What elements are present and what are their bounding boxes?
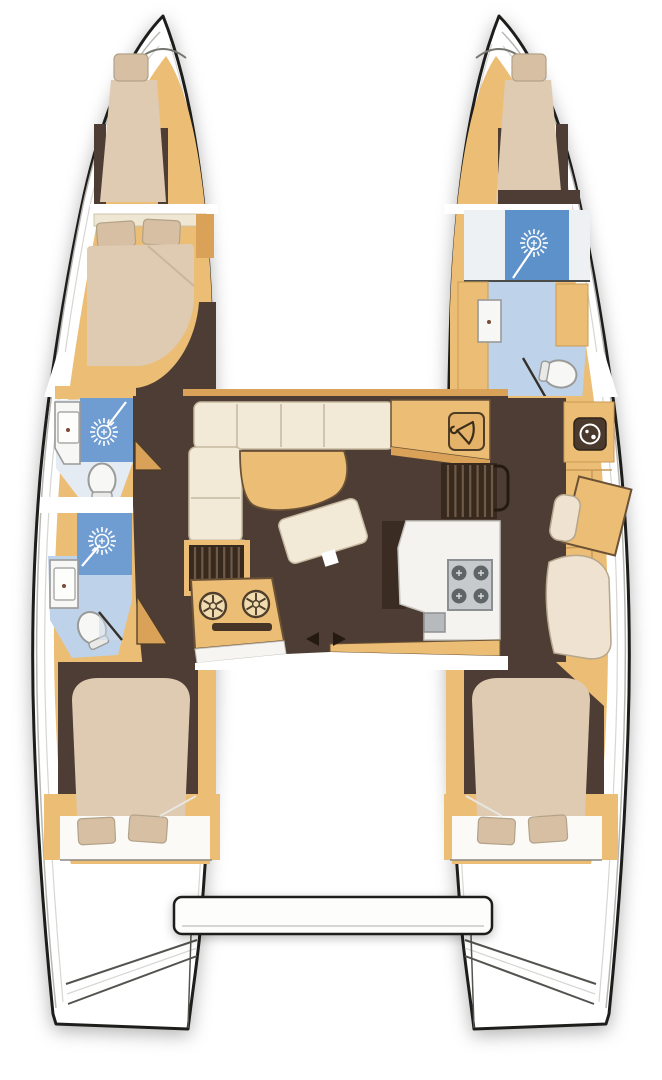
starboard-aft-cabin	[444, 662, 618, 860]
pillow	[512, 54, 546, 81]
sofa-side-cushions	[189, 447, 242, 542]
washing-machine-icon	[574, 418, 606, 450]
pillow	[528, 815, 568, 844]
washbasin-icon	[54, 568, 75, 600]
shower-stall	[505, 210, 569, 280]
door-header	[498, 190, 580, 204]
port-aft-cabin	[44, 662, 220, 860]
port-corridor	[133, 396, 183, 670]
shower-icon	[88, 527, 116, 555]
double-bed-mattress	[472, 678, 590, 816]
shower-stall	[80, 398, 133, 462]
floorplan-canvas	[0, 0, 662, 1080]
lounge-seat	[546, 555, 611, 658]
cabin-side-locker	[198, 662, 216, 794]
bulkhead-band	[40, 497, 135, 513]
shower-icon	[90, 418, 118, 446]
pillow	[114, 54, 148, 81]
console-slot	[212, 623, 272, 631]
bed-foot-deck	[452, 816, 602, 860]
basin-drain	[62, 584, 66, 588]
pillow	[128, 815, 168, 844]
pillow	[96, 221, 136, 249]
wardrobe	[449, 413, 484, 450]
step-treads	[448, 465, 492, 517]
salon	[183, 389, 508, 670]
basin-drain	[487, 320, 491, 324]
pillow	[477, 817, 515, 845]
galley-sink	[424, 613, 445, 632]
starboard-bathroom	[458, 282, 588, 405]
toilet-icon	[89, 464, 116, 501]
stern-platform	[174, 897, 492, 934]
cabin-locker	[196, 214, 214, 258]
salon-forward-wall	[183, 389, 508, 396]
washbasin-icon	[58, 412, 79, 443]
bathroom-cabinet	[556, 284, 588, 346]
transom-platform	[174, 897, 492, 934]
shower-icon	[520, 229, 548, 257]
shower-stall	[77, 513, 132, 575]
berth-mattress	[496, 80, 562, 202]
sink-drain-icon	[200, 593, 226, 619]
bulkhead-band	[90, 204, 218, 214]
catamaran-floorplan	[0, 0, 662, 1080]
pillow	[77, 817, 115, 845]
pillow	[142, 219, 180, 246]
double-bed-mattress	[72, 678, 190, 816]
berth-mattress	[100, 80, 166, 202]
sink-drain-icon	[243, 591, 269, 617]
sofa-back-cushions	[194, 402, 394, 449]
basin-drain	[66, 428, 70, 432]
companionway-steps	[441, 463, 497, 519]
stove-icon	[448, 560, 492, 610]
galley-sink-console	[191, 578, 286, 663]
bathroom-counter	[55, 386, 135, 399]
cabin-side-locker	[446, 662, 464, 794]
